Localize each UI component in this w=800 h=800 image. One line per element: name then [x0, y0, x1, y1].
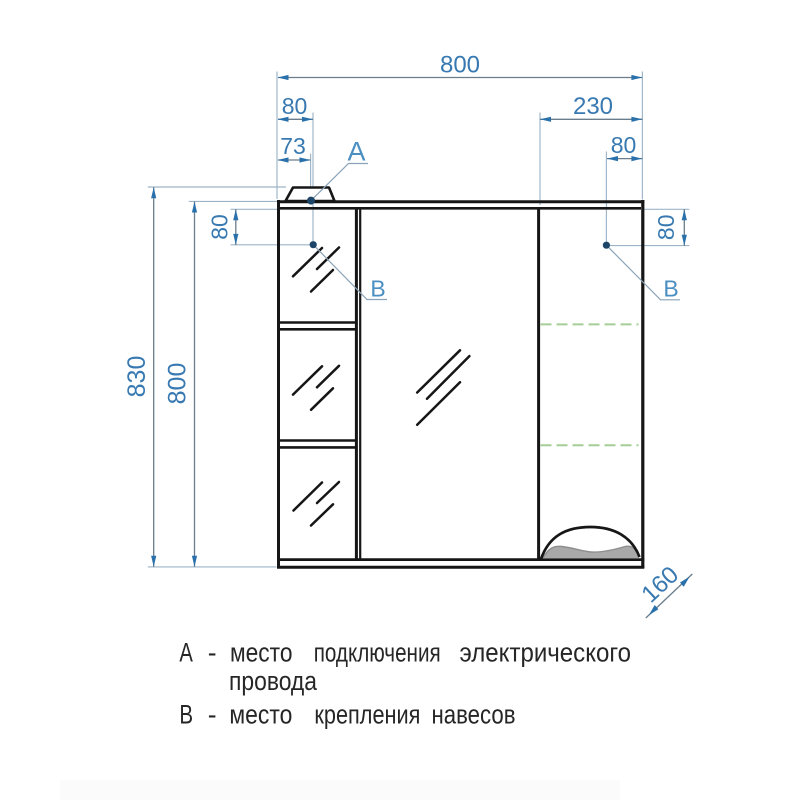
- svg-text:80: 80: [282, 93, 308, 119]
- svg-text:B: B: [370, 276, 385, 302]
- svg-text:провода: провода: [229, 666, 317, 696]
- svg-text:электрического: электрического: [460, 637, 632, 667]
- svg-text:крепления: крепления: [314, 700, 420, 730]
- svg-text:830: 830: [123, 356, 151, 398]
- svg-text:80: 80: [611, 132, 637, 158]
- svg-text:80: 80: [653, 215, 679, 241]
- svg-text:800: 800: [164, 363, 192, 405]
- svg-text:80: 80: [207, 214, 233, 240]
- svg-text:230: 230: [573, 93, 613, 120]
- svg-text:В: В: [179, 700, 193, 730]
- svg-text:-: -: [208, 700, 217, 730]
- svg-text:А: А: [179, 637, 193, 667]
- svg-text:подключения: подключения: [314, 637, 441, 667]
- svg-text:место: место: [230, 637, 293, 667]
- svg-text:800: 800: [440, 52, 480, 79]
- svg-text:место: место: [229, 700, 292, 730]
- svg-text:B: B: [663, 276, 678, 302]
- svg-text:навесов: навесов: [432, 700, 516, 730]
- svg-text:A: A: [347, 137, 365, 167]
- svg-text:-: -: [208, 637, 217, 667]
- svg-text:73: 73: [280, 133, 306, 159]
